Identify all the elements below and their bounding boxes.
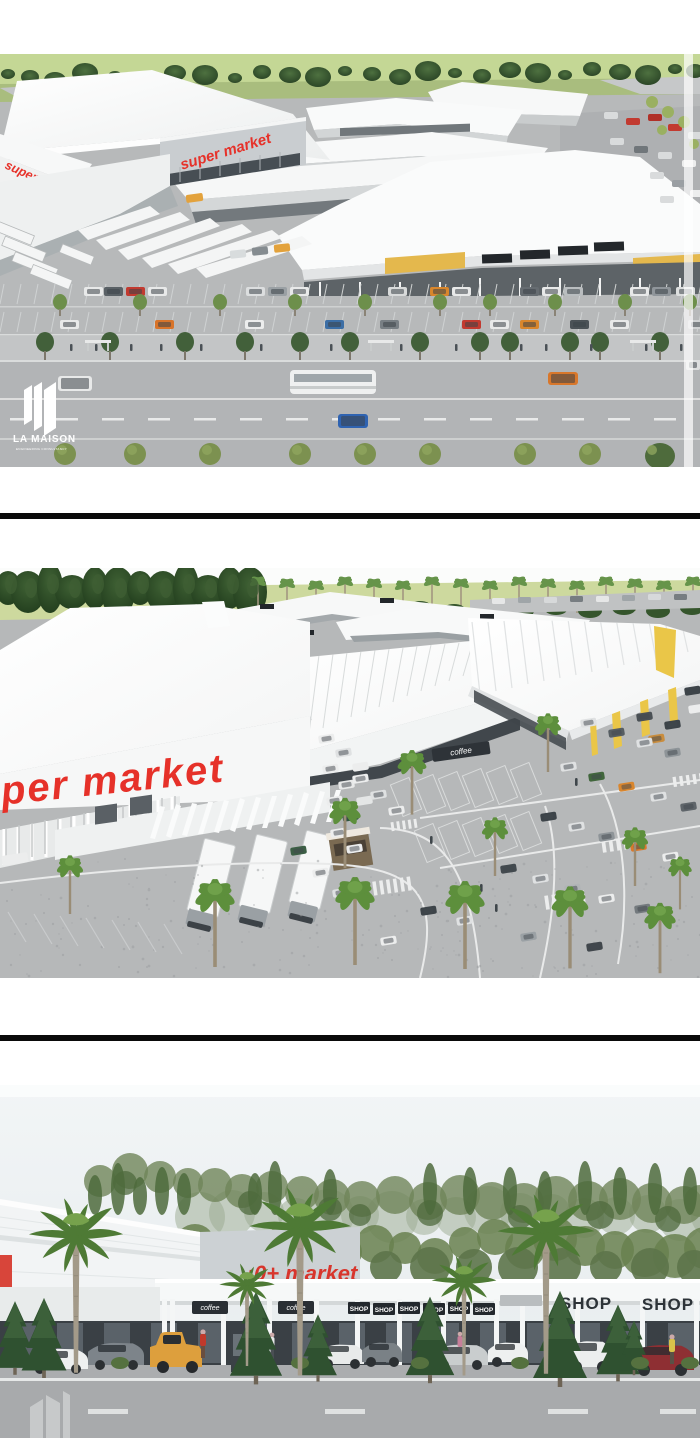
svg-text:SHOP: SHOP	[375, 1307, 394, 1314]
svg-text:ENGINEERING CONSULTANCY: ENGINEERING CONSULTANCY	[16, 447, 67, 451]
svg-text:SHOP: SHOP	[350, 1306, 369, 1313]
svg-text:SHOP: SHOP	[475, 1307, 494, 1314]
svg-text:coffee: coffee	[200, 1305, 219, 1312]
svg-text:SHOP: SHOP	[400, 1306, 419, 1313]
svg-text:SHOP: SHOP	[642, 1295, 694, 1314]
svg-text:LA MAISON: LA MAISON	[13, 434, 76, 445]
